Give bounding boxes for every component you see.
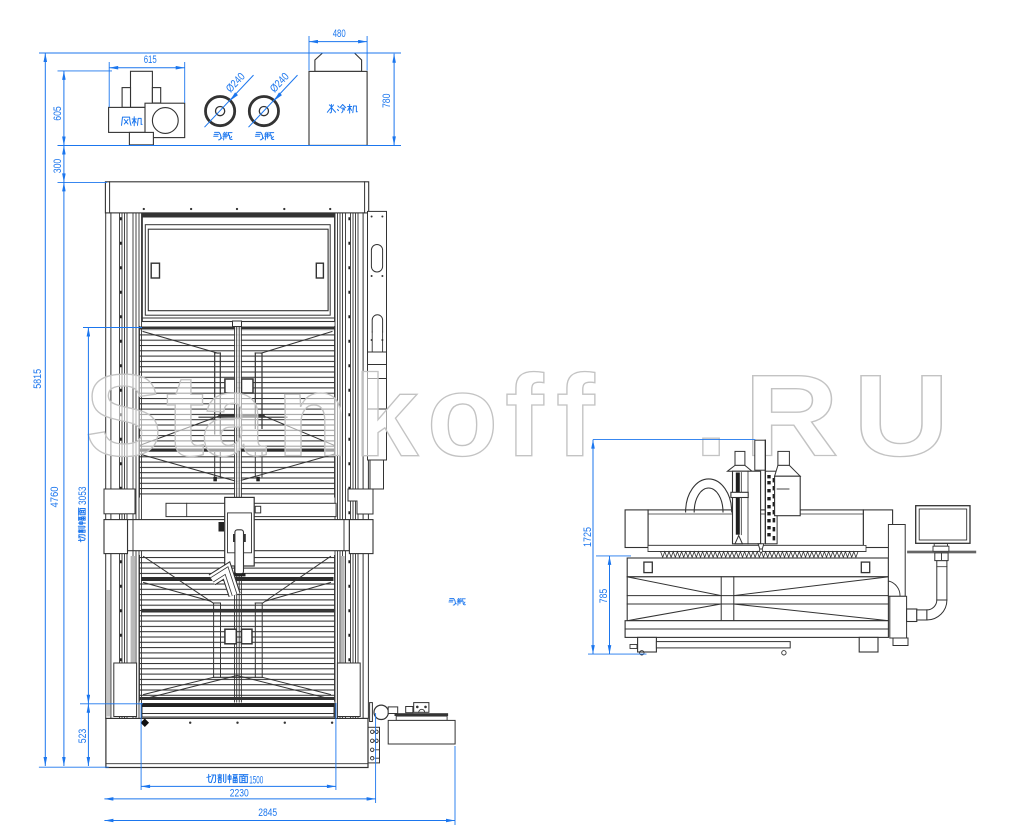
svg-text:1500: 1500: [249, 774, 263, 786]
svg-text:4760: 4760: [49, 487, 61, 508]
svg-text:1725: 1725: [582, 527, 594, 547]
svg-text:2845: 2845: [258, 807, 277, 819]
svg-text:300: 300: [52, 159, 64, 174]
svg-text:480: 480: [333, 28, 346, 40]
svg-text:785: 785: [598, 589, 610, 604]
svg-text:523: 523: [77, 729, 89, 744]
svg-text:5815: 5815: [32, 369, 44, 389]
svg-text:780: 780: [381, 94, 393, 109]
svg-text:615: 615: [144, 54, 157, 66]
svg-text:3053: 3053: [77, 487, 89, 506]
svg-text:605: 605: [52, 106, 64, 121]
svg-text:2230: 2230: [230, 787, 249, 799]
svg-text:U: U: [853, 352, 949, 481]
